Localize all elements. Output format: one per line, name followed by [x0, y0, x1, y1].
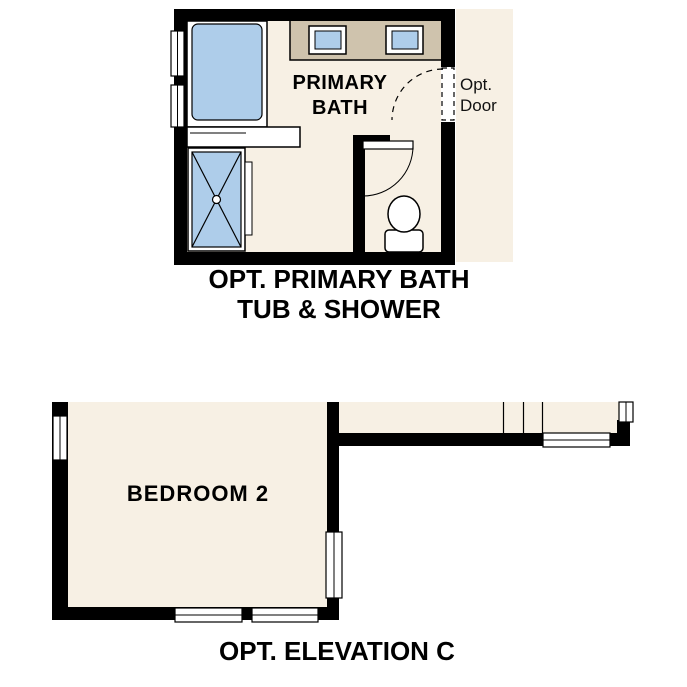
window-icon	[252, 608, 318, 622]
opt-door-label: Opt. Door	[460, 74, 530, 116]
primary-bath-room-label-line2: BATH	[240, 96, 440, 121]
corner-wall-block	[617, 420, 630, 446]
adjacent-room-floor	[339, 402, 619, 433]
floorplan-sheet: PRIMARY BATH Opt. Door OPT. PRIMARY BATH…	[0, 0, 687, 687]
shower-icon	[188, 148, 252, 251]
opt-door-label-line1: Opt.	[460, 74, 530, 95]
window-icon	[53, 416, 67, 460]
window-icon	[619, 402, 633, 422]
wall-top	[174, 9, 455, 21]
primary-bath-room-label: PRIMARY BATH	[240, 71, 440, 121]
hallway-floor	[456, 9, 513, 262]
door-leaf	[363, 141, 413, 149]
vanity-counter	[290, 15, 444, 60]
toilet-tank	[385, 230, 423, 252]
primary-bath-caption-line2: TUB & SHOWER	[139, 294, 539, 324]
opt-door-label-line2: Door	[460, 95, 530, 116]
elevation-plan	[52, 402, 633, 622]
bedroom-2-room-label: BEDROOM 2	[68, 481, 328, 507]
shower-door	[245, 162, 252, 235]
window-icon	[326, 532, 342, 598]
window-icon	[171, 31, 184, 76]
primary-bath-room-label-line1: PRIMARY	[240, 71, 440, 96]
shower-drain	[213, 196, 221, 204]
toilet-icon	[385, 196, 423, 252]
primary-bath-caption: OPT. PRIMARY BATH TUB & SHOWER	[139, 264, 539, 324]
wall-right-upper	[441, 9, 455, 67]
elevation-caption: OPT. ELEVATION C	[137, 636, 537, 666]
tub-deck	[187, 127, 300, 147]
toilet-room-wall-left	[353, 135, 365, 252]
window-icon	[175, 608, 242, 622]
sink-icon	[386, 26, 423, 54]
window-icon	[171, 85, 184, 127]
primary-bath-caption-line1: OPT. PRIMARY BATH	[139, 264, 539, 294]
primary-bath-plan	[171, 9, 513, 265]
optional-door-leaf	[442, 68, 454, 120]
toilet-bowl	[388, 196, 420, 232]
wall-right-lower	[441, 122, 455, 265]
window-icon	[543, 433, 610, 447]
sink-icon	[309, 26, 346, 54]
